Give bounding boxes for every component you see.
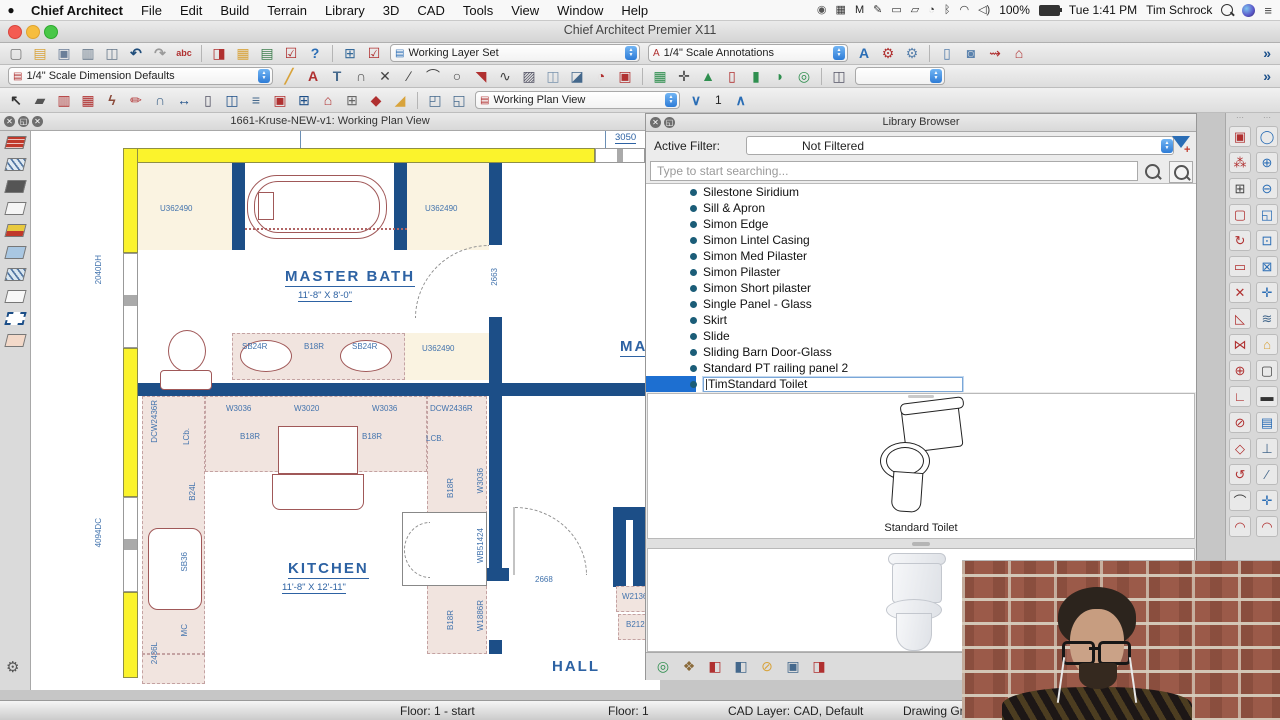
hatch-wall-button[interactable]: ✏ [125, 90, 147, 110]
framing-tool-button[interactable]: ⊞ [341, 90, 363, 110]
railing-tool-button[interactable]: ▥ [53, 90, 75, 110]
time-machine-icon[interactable]: ◔ [928, 0, 935, 20]
interior-wall[interactable] [138, 383, 660, 396]
active-layer-display-button[interactable]: ▤ [256, 43, 278, 63]
plan-label: B18R [304, 342, 324, 351]
library-item-icon [690, 221, 697, 228]
library-item[interactable]: Sill & Apron [646, 200, 1196, 216]
plan-label: SB24R [242, 342, 267, 351]
spell-check-button[interactable]: abc [173, 43, 195, 63]
text-tool-button[interactable]: A [302, 66, 324, 86]
wifi-icon[interactable]: ◠ [959, 0, 969, 20]
home-overview-button[interactable]: ⌂ [1008, 43, 1030, 63]
display-options-button[interactable]: ▦ [232, 43, 254, 63]
line-angle-button[interactable]: ∕ [1256, 464, 1278, 485]
toolbar-separator [417, 92, 418, 109]
splitter-handle[interactable] [912, 542, 930, 546]
show-in-3d-button[interactable]: ▣ [782, 657, 804, 677]
partition-wall-button[interactable] [4, 334, 26, 347]
plant-chooser-button[interactable]: ◎ [793, 66, 815, 86]
library-item-label: Simon Med Pilaster [703, 249, 807, 263]
brick-wall-button[interactable] [4, 136, 26, 149]
annotation-set-combo-icon: A [653, 48, 660, 59]
person-glasses-left [1062, 641, 1095, 665]
preview-pane-button[interactable]: ▤ [1256, 412, 1278, 433]
menu-cad[interactable]: CAD [408, 3, 453, 18]
circle-tool-button[interactable]: ○ [446, 66, 468, 86]
library-item[interactable]: Sliding Barn Door-Glass [646, 344, 1196, 360]
plan-window-title: 1661-Kruse-NEW-v1: Working Plan View [0, 115, 660, 127]
symbol-shape-button[interactable]: ◗ [769, 66, 791, 86]
plan-label: W3036 [372, 404, 397, 413]
fillet-corner-button[interactable]: ◺ [1229, 308, 1251, 329]
kitchen-sink[interactable] [148, 528, 202, 610]
library-item-icon [690, 301, 697, 308]
library-item-label: Skirt [703, 313, 727, 327]
library-item-icon [690, 285, 697, 292]
curved-wall-button[interactable]: ∩ [149, 90, 171, 110]
plan-label: KITCHEN [288, 560, 369, 579]
annotation-set-combo-stepper[interactable]: ▲▼ [833, 46, 845, 60]
library-tree-list[interactable]: Silestone SiridiumSill & ApronSimon Edge… [646, 183, 1196, 392]
spline-tool-button[interactable]: ∿ [494, 66, 516, 86]
break-edit-button[interactable]: ⊥ [1256, 438, 1278, 459]
pen-tablet-icon[interactable]: ✎ [873, 0, 882, 20]
status-floor-start: Floor: 1 - start [400, 704, 475, 718]
angle-edit-button[interactable]: ∟ [1229, 386, 1251, 407]
rotate-tool-button[interactable]: ↻ [1229, 230, 1251, 251]
help-button[interactable]: ? [304, 43, 326, 63]
search-icon[interactable] [1145, 164, 1160, 179]
library-item[interactable]: Skirt [646, 312, 1196, 328]
adjust-defaults-check-button[interactable]: ⚙ [877, 43, 899, 63]
layer-set-combo-stepper[interactable]: ▲▼ [625, 46, 637, 60]
import-template-button[interactable]: ◱ [448, 90, 470, 110]
plan-label: MA [620, 338, 647, 357]
wall-tool-icons [0, 130, 30, 347]
plant-tool-button[interactable]: ▲ [697, 66, 719, 86]
reshape-rectangle-button[interactable]: ▭ [1229, 256, 1251, 277]
plan-label: DCW2436R [430, 404, 473, 413]
menubar-status-area: ◉▦M✎▭▱◔ᛒ◠◁) 100% Tue 1:41 PM Tim Schrock… [817, 0, 1280, 20]
plan-label: U362490 [422, 344, 454, 353]
floor-plan-canvas[interactable]: 3050U362490U3624902040DHMASTER BATH11'-8… [30, 130, 660, 690]
library-item-label: Single Panel - Glass [703, 297, 812, 311]
toolbar-overflow-button[interactable]: » [1263, 45, 1275, 61]
bluetooth-icon[interactable]: ᛒ [944, 0, 951, 20]
creative-cloud-icon[interactable]: ◉ [817, 0, 827, 20]
library-item-rename-input[interactable]: TimStandard Toilet [703, 377, 963, 392]
interior-wall[interactable] [489, 396, 502, 570]
transform-replicate-button[interactable]: ▣ [1229, 126, 1251, 147]
toilet-sketch-seat-inner [886, 447, 924, 475]
preferences-check-button[interactable]: ☑ [363, 43, 385, 63]
toolbar-separator [821, 68, 822, 85]
airplay-icon[interactable]: ▱ [911, 0, 919, 20]
column-handle[interactable]: ⋯ [1236, 115, 1244, 121]
plan-label: HALL [552, 658, 600, 675]
reference-floor-button[interactable]: ⌂ [1256, 334, 1278, 355]
library-item-icon [690, 189, 697, 196]
volume-icon[interactable]: ◁) [978, 0, 990, 20]
siri-icon[interactable] [1242, 4, 1255, 17]
library-item[interactable]: Simon Lintel Casing [646, 232, 1196, 248]
exterior-wall[interactable] [123, 348, 138, 497]
layout-page-button[interactable]: ◫ [828, 66, 850, 86]
plan-label: 11'-8" X 12'-11" [282, 582, 346, 594]
menu-window[interactable]: Window [548, 3, 612, 18]
picture-file-button[interactable]: ▦ [649, 66, 671, 86]
cad-detail-button[interactable]: ▣ [614, 66, 636, 86]
layer-set-combo-value: Working Layer Set [408, 47, 625, 59]
redo-button[interactable]: ↷ [149, 43, 171, 63]
menu-edit[interactable]: Edit [171, 3, 211, 18]
active-filter-value: Not Filtered [747, 139, 1161, 153]
undo-button[interactable]: ↶ [125, 43, 147, 63]
display-icon[interactable]: ▭ [891, 0, 901, 20]
door-swing-arc[interactable] [415, 245, 489, 318]
tub-faucet [258, 192, 274, 220]
text-style-button[interactable]: A [853, 43, 875, 63]
library-preview-caption: Standard Toilet [648, 522, 1194, 534]
save-plan-button[interactable]: ▣ [53, 43, 75, 63]
plan-label: W3020 [294, 404, 319, 413]
menu-items: Chief ArchitectFileEditBuildTerrainLibra… [22, 3, 657, 18]
library-item-icon [690, 381, 697, 388]
edit-tools-column: ⋯▣⁂⊞▢↻▭✕◺⋈⊕∟⊘◇↺⌒◠ [1227, 115, 1253, 537]
library-item-label: Simon Lintel Casing [703, 233, 810, 247]
selection-highlight [646, 376, 696, 392]
window-areas-button[interactable]: ▯ [936, 43, 958, 63]
invisible-wall-button[interactable] [4, 312, 26, 325]
exterior-wall[interactable] [123, 148, 138, 253]
library-item-icon [690, 253, 697, 260]
fill-window-center-button[interactable]: ⊠ [1256, 256, 1278, 277]
person-beard [1079, 663, 1117, 689]
grid-snaps-button[interactable]: ⊞ [1229, 178, 1251, 199]
cad-block-button[interactable]: ◫ [542, 66, 564, 86]
plan-label: 11'-8" X 8'-0" [298, 290, 352, 302]
arc-create-button[interactable]: ⌒ [1229, 490, 1251, 511]
corner-board-button[interactable]: ◢ [389, 90, 411, 110]
fill-window-button[interactable]: ⊡ [1256, 230, 1278, 251]
column-handle[interactable]: ⋯ [1263, 115, 1271, 121]
wall-tools-sidebar: ⚙ [0, 130, 31, 690]
compass-arc-button[interactable]: ◠ [1256, 516, 1278, 537]
person-glasses-bridge [1089, 647, 1098, 650]
window-symbol[interactable] [123, 497, 138, 592]
center-object-button[interactable]: ⊕ [1229, 360, 1251, 381]
blank-combo[interactable]: ▲▼ [855, 67, 945, 85]
dimension-tool-button[interactable]: ↔ [173, 90, 195, 110]
active-filter-row: Active Filter: Not Filtered ▲▼ [646, 134, 1196, 158]
export-template-button[interactable]: ◰ [424, 90, 446, 110]
menu-build[interactable]: Build [211, 3, 258, 18]
millwork-column-button[interactable]: ▮ [745, 66, 767, 86]
library-item-selected[interactable]: TimStandard Toilet [646, 376, 1196, 392]
exterior-wall[interactable] [123, 592, 138, 678]
tile-edge [245, 228, 407, 240]
new-plan-button[interactable]: ▢ [5, 43, 27, 63]
menubar-user[interactable]: Tim Schrock [1146, 3, 1212, 17]
plan-label: B18R [362, 432, 382, 441]
plan-label: B18R [240, 432, 260, 441]
door-leaf [513, 507, 515, 575]
walkthrough-button[interactable]: ⇝ [984, 43, 1006, 63]
interior-wall[interactable] [489, 317, 502, 383]
zoom-button[interactable]: ◯ [1256, 126, 1278, 147]
library-item[interactable]: Simon Edge [646, 216, 1196, 232]
interior-wall[interactable] [232, 163, 245, 250]
exterior-wall[interactable] [123, 148, 595, 163]
menu-3d[interactable]: 3D [374, 3, 409, 18]
half-wall-white-button[interactable] [4, 290, 26, 303]
foundation-wall-button[interactable] [4, 224, 26, 237]
plan-label: U362490 [425, 204, 457, 213]
plan-label: SB36 [180, 552, 189, 572]
interior-wall[interactable] [489, 163, 502, 245]
blank-combo-stepper[interactable]: ▲▼ [930, 69, 942, 83]
menu-view[interactable]: View [502, 3, 548, 18]
text-caret [706, 379, 707, 390]
macos-menubar: ● Chief ArchitectFileEditBuildTerrainLib… [0, 0, 1280, 21]
plan-label: B18R [446, 478, 455, 498]
library-item[interactable]: Simon Pilaster [646, 264, 1196, 280]
library-panel-add-button[interactable]: ◧ [704, 657, 726, 677]
status-floor: Floor: 1 [608, 704, 649, 718]
library-item-label: Simon Edge [703, 217, 768, 231]
menubar-status-icons: ◉▦M✎▭▱◔ᛒ◠◁) [817, 0, 990, 20]
window-symbol[interactable] [595, 148, 645, 163]
plan-label: W1886R [476, 600, 485, 631]
plan-label: WB51424 [476, 528, 485, 563]
railing-wall-button[interactable] [4, 202, 26, 215]
notification-center-icon[interactable]: ≡ [1264, 3, 1272, 18]
dimension-defaults-combo-value: 1/4" Scale Dimension Defaults [26, 70, 258, 82]
toilet-tank [160, 370, 212, 390]
floor-up-button[interactable]: ∧ [730, 90, 752, 110]
library-titlebar[interactable]: ✕ ◱ Library Browser [646, 114, 1196, 132]
library-search-input[interactable] [650, 161, 1138, 181]
half-wall-blue-button[interactable] [4, 246, 26, 259]
select-marquee-button[interactable]: ▢ [1229, 204, 1251, 225]
app-window: ● Chief ArchitectFileEditBuildTerrainLib… [0, 0, 1280, 720]
menu-help[interactable]: Help [612, 3, 657, 18]
window-symbol[interactable] [123, 253, 138, 348]
wd-drive-icon[interactable]: ▦ [836, 0, 846, 20]
elevation-reference-button[interactable]: ◪ [566, 66, 588, 86]
layer-display-options-button[interactable]: ◨ [208, 43, 230, 63]
disconnect-edges-button[interactable]: ⊘ [1229, 412, 1251, 433]
plan-label: 2436L [150, 642, 159, 664]
person-shoulders [1002, 687, 1192, 720]
status-cad-layer: CAD Layer: CAD, Default [728, 704, 863, 718]
door-tool-button[interactable]: ▯ [197, 90, 219, 110]
floor-down-button[interactable]: ∨ [685, 90, 707, 110]
apple-icon[interactable]: ● [0, 3, 22, 17]
plan-label: B18R [446, 610, 455, 630]
menu-terrain[interactable]: Terrain [258, 3, 316, 18]
pan-window-button[interactable]: ✛ [1256, 282, 1278, 303]
window-tool-button[interactable]: ◫ [221, 90, 243, 110]
webcam-overlay [962, 560, 1280, 720]
dimension-tick [605, 130, 606, 148]
rotate-about-point-button[interactable]: ↺ [1229, 464, 1251, 485]
arc-tool-button[interactable]: ⌒ [422, 66, 444, 86]
plant-finder-button[interactable]: ◎ [652, 657, 674, 677]
open-plan-button[interactable]: ▤ [29, 43, 51, 63]
solid-wall-button[interactable] [4, 180, 26, 193]
menu-tools[interactable]: Tools [454, 3, 502, 18]
node-polyline-button[interactable]: ∩ [350, 66, 372, 86]
fireplace-tool-button[interactable]: ▣ [269, 90, 291, 110]
plan-view-combo-stepper[interactable]: ▲▼ [665, 93, 677, 107]
door-swing-symbol-button[interactable]: ◔ [590, 66, 612, 86]
library-item-icon [690, 317, 697, 324]
select-objects-button[interactable]: ↖ [5, 90, 27, 110]
line-tool-button[interactable]: ∕ [398, 66, 420, 86]
dimension-defaults-combo[interactable]: ▤1/4" Scale Dimension Defaults▲▼ [8, 67, 273, 85]
glass-wall-button[interactable] [4, 158, 26, 171]
plan-view-combo[interactable]: ▤Working Plan View▲▼ [475, 91, 680, 109]
annotation-set-combo[interactable]: A1/4" Scale Annotations▲▼ [648, 44, 848, 62]
trim-objects-button[interactable]: ✕ [1229, 282, 1251, 303]
camera-view-button[interactable]: ◙ [960, 43, 982, 63]
library-item-label: Standard PT railing panel 2 [703, 361, 848, 375]
leader-line-button[interactable]: T [326, 66, 348, 86]
plan-label: LCB. [426, 434, 444, 443]
malwarebytes-icon[interactable]: M [855, 0, 864, 20]
zoom-out-button[interactable]: ⊖ [1256, 178, 1278, 199]
library-item-label: Silestone Siridium [703, 185, 799, 199]
library-item[interactable]: Standard PT railing panel 2 [646, 360, 1196, 376]
sprinkle-objects-button[interactable]: ⁂ [1229, 152, 1251, 173]
menu-chief-architect[interactable]: Chief Architect [22, 3, 132, 18]
polygon-edit-button[interactable]: ◇ [1229, 438, 1251, 459]
app-titlebar: Chief Architect Premier X11 [0, 20, 1280, 43]
library-item-icon [690, 349, 697, 356]
print-preview-button[interactable]: ◫ [101, 43, 123, 63]
library-item-label: Simon Pilaster [703, 265, 780, 279]
hatch-region-button[interactable]: ▨ [518, 66, 540, 86]
app-title: Chief Architect Premier X11 [0, 23, 1280, 37]
layer-set-combo[interactable]: ▤Working Layer Set▲▼ [390, 44, 640, 62]
library-item-label: Slide [703, 329, 730, 343]
door-swing-arc[interactable] [515, 507, 587, 575]
library-item[interactable]: Simon Med Pilaster [646, 248, 1196, 264]
toolbar-row-3: ↖▰▥▦ϟ✏∩↔▯◫≡▣⊞⌂⊞◆◢◰◱▤Working Plan View▲▼∨… [0, 88, 1280, 113]
library-item[interactable]: Simon Short pilaster [646, 280, 1196, 296]
straight-wall-button[interactable]: ▰ [29, 90, 51, 110]
half-wall-hatch-button[interactable] [4, 268, 26, 281]
toolbar-overflow-button[interactable]: » [1263, 68, 1275, 84]
layer-sets-button[interactable]: ≋ [1256, 308, 1278, 329]
view-tools-column: ⋯◯⊕⊖◱⊡⊠✛≋⌂▢▬▤⊥∕✛◠ [1254, 115, 1280, 537]
library-item-icon [690, 365, 697, 372]
library-item-label: TimStandard Toilet [708, 377, 807, 391]
search-preview-button[interactable] [1169, 161, 1193, 183]
cad-pointer-button[interactable]: ◥ [470, 66, 492, 86]
toolbar-separator [201, 45, 202, 62]
library-item-icon [690, 269, 697, 276]
library-item[interactable]: Silestone Siridium [646, 184, 1196, 200]
menu-library[interactable]: Library [316, 3, 374, 18]
library-2d-preview-pane: Standard Toilet [647, 393, 1195, 539]
point-marker-button[interactable]: ✛ [673, 66, 695, 86]
undo-zoom-button[interactable]: ◱ [1256, 204, 1278, 225]
library-item[interactable]: Single Panel - Glass [646, 296, 1196, 312]
export-library-button[interactable]: ◨ [808, 657, 830, 677]
zoom-in-button[interactable]: ⊕ [1256, 152, 1278, 173]
adjust-defaults-button[interactable]: ⚙ [901, 43, 923, 63]
active-filter-label: Active Filter: [654, 139, 720, 153]
layer-set-combo-icon: ▤ [395, 48, 404, 59]
dimension-defaults-combo-stepper[interactable]: ▲▼ [258, 69, 270, 83]
spotlight-search-icon[interactable] [1221, 4, 1233, 16]
pane-splitter[interactable] [646, 539, 1196, 548]
search-folder-icon [1174, 165, 1189, 180]
mirror-objects-button[interactable]: ⋈ [1229, 334, 1251, 355]
materials-painter-button[interactable]: ❖ [678, 657, 700, 677]
current-floor-number: 1 [709, 93, 728, 107]
roof-tool-button[interactable]: ⌂ [317, 90, 339, 110]
plan-window-titlebar[interactable]: ✕ ◱ ✕ ✕ 1661-Kruse-NEW-v1: Working Plan … [0, 113, 660, 131]
cross-box-button[interactable]: ✕ [374, 66, 396, 86]
edit-active-view-button[interactable]: ⊞ [339, 43, 361, 63]
settings-gear-icon[interactable]: ⚙ [6, 658, 19, 676]
plan-view-combo-value: Working Plan View [493, 94, 665, 106]
plan-label: MC [180, 624, 189, 636]
active-filter-combo[interactable]: Not Filtered ▲▼ [746, 136, 1174, 155]
annotation-set-combo-value: 1/4" Scale Annotations [664, 47, 833, 59]
menu-file[interactable]: File [132, 3, 171, 18]
layer-painter-button[interactable]: ☑ [280, 43, 302, 63]
dimension-defaults-combo-icon: ▤ [13, 71, 22, 82]
toilet-symbol[interactable] [168, 330, 206, 372]
pane-drag-handle[interactable] [908, 395, 934, 398]
menubar-clock[interactable]: Tue 1:41 PM [1069, 3, 1137, 17]
tile-tool-button[interactable]: ◆ [365, 90, 387, 110]
curve-edit-button[interactable]: ◠ [1229, 516, 1251, 537]
section-marker-button[interactable]: ▬ [1256, 386, 1278, 407]
filters-toggle-button[interactable]: ⊘ [756, 657, 778, 677]
interior-wall[interactable] [489, 640, 502, 654]
plan-label: 4094DC [94, 518, 103, 547]
cad-detail-management-button[interactable]: ▯ [721, 66, 743, 86]
plan-label: U362490 [160, 204, 192, 213]
tape-measure-button[interactable]: ╱ [278, 66, 300, 86]
library-item[interactable]: Slide [646, 328, 1196, 344]
cabinet-tool-button[interactable]: ⊞ [293, 90, 315, 110]
library-item-label: Sliding Barn Door-Glass [703, 345, 832, 359]
plan-label: W3036 [476, 468, 485, 493]
cross-marker-button[interactable]: ✛ [1256, 490, 1278, 511]
plan-label: DCW2436R [150, 400, 159, 443]
library-item-icon [690, 333, 697, 340]
wall-break-button[interactable]: ϟ [101, 90, 123, 110]
print-button[interactable]: ▥ [77, 43, 99, 63]
plan-label: B24L [188, 482, 197, 501]
blank-view-button[interactable]: ▢ [1256, 360, 1278, 381]
library-panel-check-button[interactable]: ◧ [730, 657, 752, 677]
add-filter-icon[interactable] [1172, 136, 1190, 148]
material-region-button[interactable]: ▦ [77, 90, 99, 110]
island-cabinet [272, 474, 364, 510]
range-appliance[interactable] [278, 426, 358, 474]
interior-wall[interactable] [613, 520, 626, 587]
library-item-label: Sill & Apron [703, 201, 765, 215]
stairs-tool-button[interactable]: ≡ [245, 90, 267, 110]
